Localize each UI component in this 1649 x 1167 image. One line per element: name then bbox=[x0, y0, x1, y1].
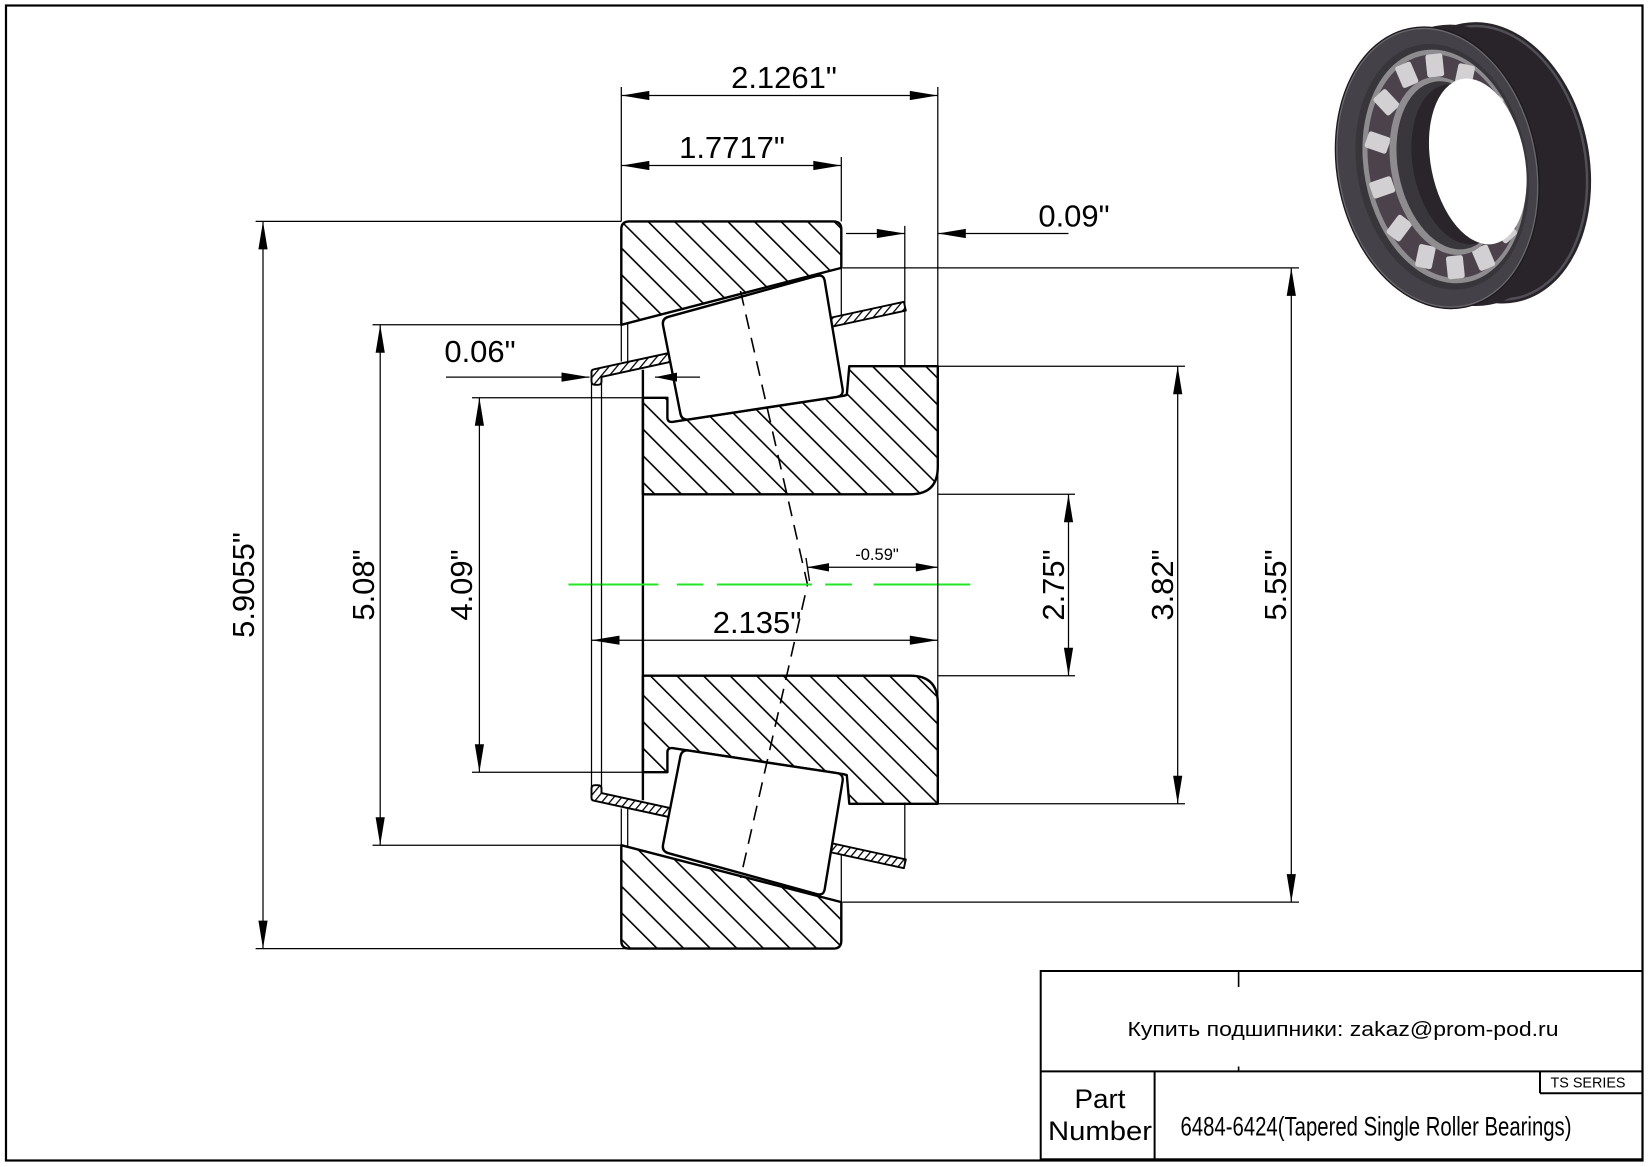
svg-text:2.135": 2.135" bbox=[713, 605, 802, 640]
svg-text:2.1261": 2.1261" bbox=[731, 60, 837, 95]
svg-text:4.09": 4.09" bbox=[444, 549, 479, 620]
svg-text:2.75": 2.75" bbox=[1036, 549, 1071, 620]
svg-text:0.06": 0.06" bbox=[444, 334, 515, 369]
svg-text:-0.59": -0.59" bbox=[855, 546, 899, 564]
svg-text:0.09": 0.09" bbox=[1038, 199, 1109, 234]
svg-text:5.9055": 5.9055" bbox=[226, 532, 261, 638]
svg-text:5.55": 5.55" bbox=[1258, 549, 1293, 620]
svg-text:TS SERIES: TS SERIES bbox=[1551, 1075, 1626, 1092]
svg-text:1.7717": 1.7717" bbox=[679, 130, 785, 165]
svg-text:3.82": 3.82" bbox=[1145, 549, 1180, 620]
svg-text:6484-6424(Tapered Single Rolle: 6484-6424(Tapered Single Roller Bearings… bbox=[1181, 1112, 1572, 1142]
svg-text:Part: Part bbox=[1075, 1084, 1126, 1114]
svg-text:Number: Number bbox=[1048, 1116, 1152, 1146]
svg-text:Купить подшипники: zakaz@prom-: Купить подшипники: zakaz@prom-pod.ru bbox=[1128, 1018, 1559, 1041]
svg-text:5.08": 5.08" bbox=[346, 549, 381, 620]
